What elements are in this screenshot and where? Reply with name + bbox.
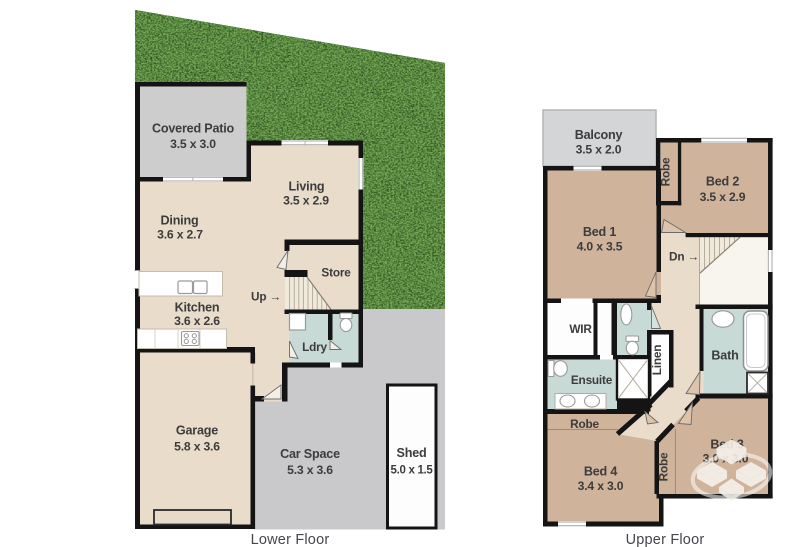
svg-text:Upper Floor: Upper Floor [626, 532, 705, 547]
svg-text:Covered Patio: Covered Patio [152, 122, 235, 136]
svg-text:Dn →: Dn → [669, 250, 699, 264]
svg-text:Up →: Up → [251, 290, 281, 304]
svg-text:3.6 x 2.7: 3.6 x 2.7 [157, 228, 203, 242]
svg-text:Robe: Robe [659, 157, 673, 186]
svg-text:Robe: Robe [570, 417, 599, 431]
svg-text:Garage: Garage [176, 424, 218, 438]
svg-text:3.5 x 2.9: 3.5 x 2.9 [700, 190, 746, 204]
svg-text:Store: Store [321, 266, 351, 280]
svg-text:Kitchen: Kitchen [175, 301, 220, 315]
svg-text:Balcony: Balcony [575, 128, 623, 142]
svg-text:Ensuite: Ensuite [571, 373, 613, 387]
svg-text:5.8 x 3.6: 5.8 x 3.6 [174, 440, 220, 454]
svg-text:5.0 x 1.5: 5.0 x 1.5 [390, 465, 433, 477]
svg-text:3.5 x 2.0: 3.5 x 2.0 [576, 143, 622, 157]
svg-text:3.4 x 3.0: 3.4 x 3.0 [578, 479, 624, 493]
svg-text:5.3 x 3.6: 5.3 x 3.6 [287, 463, 333, 477]
svg-text:Robe: Robe [657, 452, 671, 481]
svg-text:4.0 x 3.5: 4.0 x 3.5 [577, 240, 623, 254]
svg-text:3.6 x 2.6: 3.6 x 2.6 [174, 314, 220, 328]
svg-text:Dining: Dining [161, 214, 199, 228]
svg-text:Living: Living [289, 180, 325, 194]
svg-text:Bed 1: Bed 1 [583, 225, 616, 239]
svg-text:WIR: WIR [569, 322, 592, 336]
svg-text:Car Space: Car Space [280, 447, 340, 461]
svg-text:Ldry: Ldry [302, 340, 327, 354]
svg-text:Shed: Shed [397, 446, 427, 460]
svg-text:Bed 4: Bed 4 [584, 465, 617, 479]
svg-text:Bath: Bath [711, 349, 738, 363]
svg-text:3.5 x 3.0: 3.5 x 3.0 [170, 137, 216, 151]
svg-text:Bed 2: Bed 2 [706, 175, 739, 189]
svg-text:Linen: Linen [650, 345, 664, 375]
svg-text:Lower Floor: Lower Floor [251, 532, 330, 547]
svg-text:3.5 x 2.9: 3.5 x 2.9 [283, 194, 329, 208]
